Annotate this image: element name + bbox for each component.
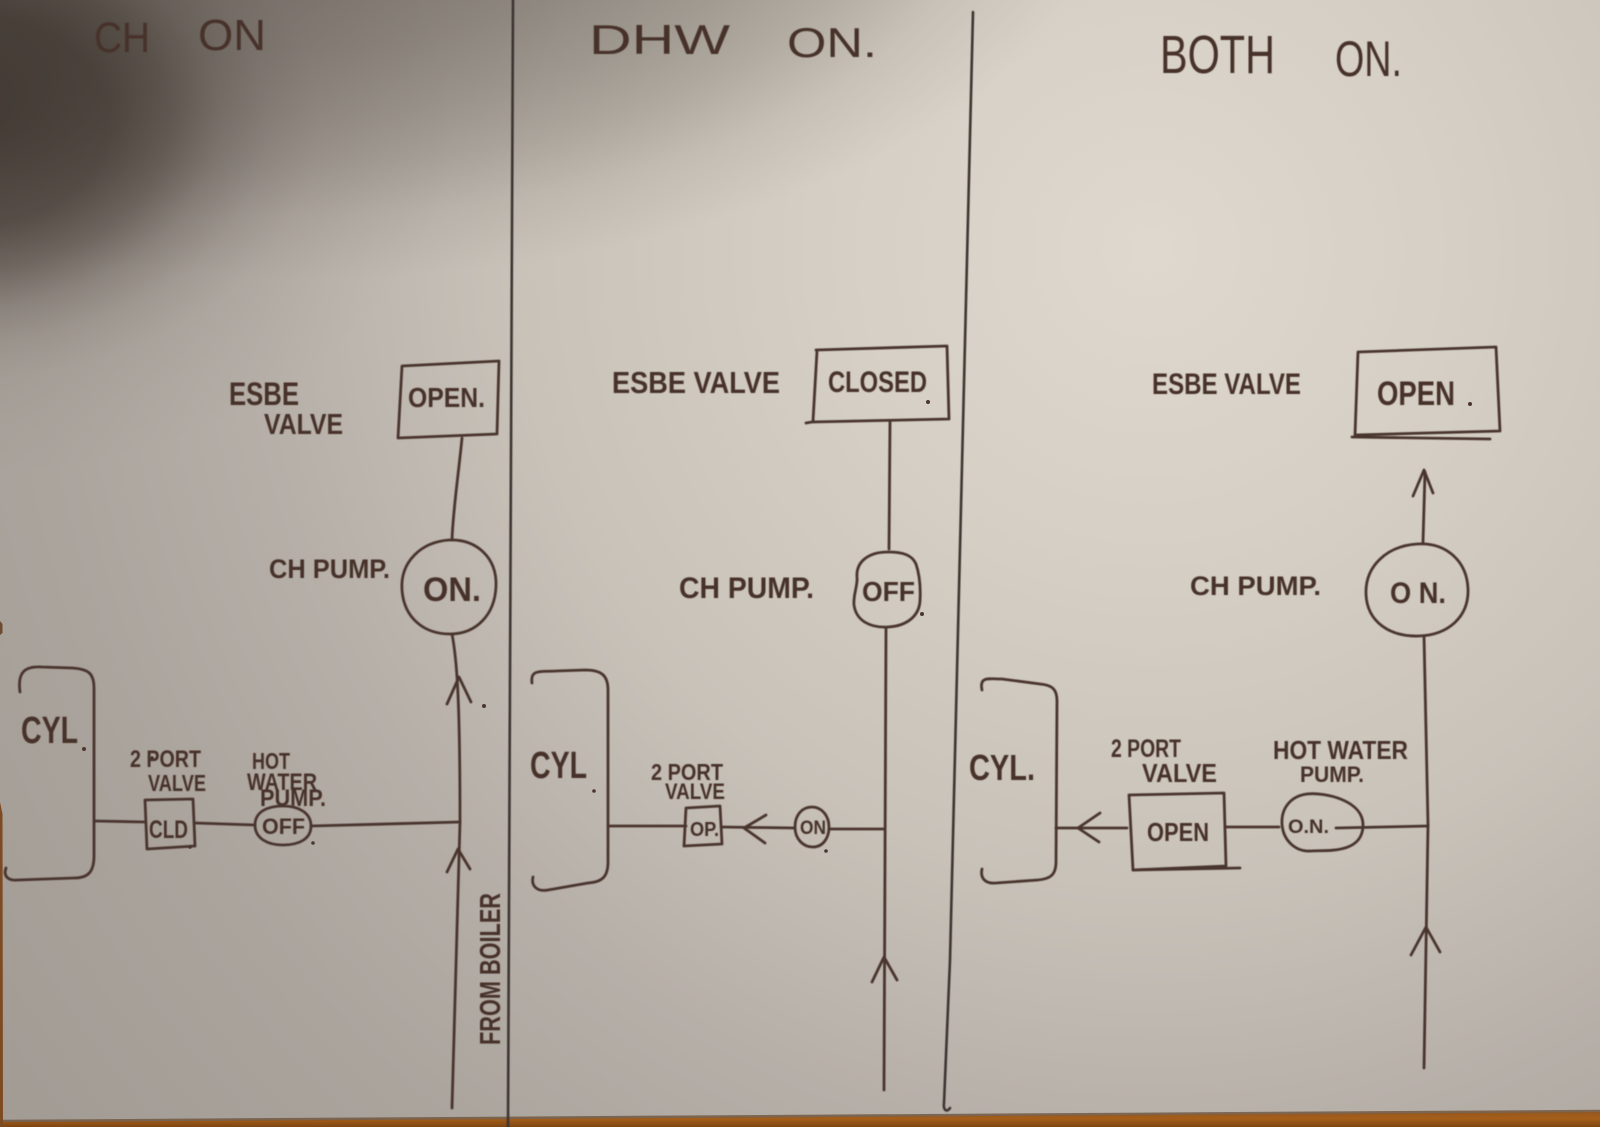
svg-text:ON: ON [198, 11, 266, 60]
svg-text:OPEN: OPEN [1147, 817, 1209, 847]
svg-text:PUMP.: PUMP. [260, 785, 326, 812]
svg-text:DHW: DHW [589, 16, 730, 63]
svg-text:CH PUMP.: CH PUMP. [269, 554, 390, 584]
svg-text:CYL: CYL [21, 710, 78, 752]
svg-text:VALVE: VALVE [1142, 758, 1217, 788]
svg-text:ON.: ON. [423, 571, 481, 609]
svg-text:CLD: CLD [149, 816, 188, 844]
svg-text:O N.: O N. [1390, 577, 1446, 610]
svg-text:OFF: OFF [862, 576, 915, 607]
svg-text:VALVE: VALVE [148, 770, 206, 796]
svg-text:ON.: ON. [1335, 31, 1402, 87]
svg-text:CH: CH [94, 14, 150, 62]
svg-text:CYL: CYL [530, 745, 587, 787]
svg-text:ESBE VALVE: ESBE VALVE [1152, 368, 1301, 401]
svg-text:OFF: OFF [262, 814, 305, 839]
svg-text:PUMP.: PUMP. [1300, 762, 1364, 787]
svg-text:CYL.: CYL. [969, 747, 1035, 788]
svg-text:OPEN.: OPEN. [408, 382, 485, 413]
svg-text:ON: ON [800, 818, 826, 839]
svg-text:VALVE: VALVE [665, 779, 725, 804]
svg-text:ESBE VALVE: ESBE VALVE [612, 365, 780, 400]
svg-text:CLOSED: CLOSED [828, 366, 927, 399]
svg-text:2 PORT: 2 PORT [130, 746, 201, 773]
svg-text:OP.: OP. [690, 819, 719, 841]
svg-text:ESBE: ESBE [229, 376, 299, 412]
svg-text:ON.: ON. [787, 19, 877, 66]
svg-text:HOT WATER: HOT WATER [1273, 735, 1408, 765]
svg-text:BOTH: BOTH [1160, 25, 1275, 85]
svg-text:O.N.: O.N. [1288, 817, 1329, 838]
svg-text:CH PUMP.: CH PUMP. [1190, 571, 1321, 601]
svg-text:CH PUMP.: CH PUMP. [679, 572, 814, 605]
svg-text:FROM BOILER: FROM BOILER [475, 893, 507, 1045]
svg-text:OPEN: OPEN [1377, 375, 1455, 413]
svg-text:VALVE: VALVE [264, 409, 343, 441]
